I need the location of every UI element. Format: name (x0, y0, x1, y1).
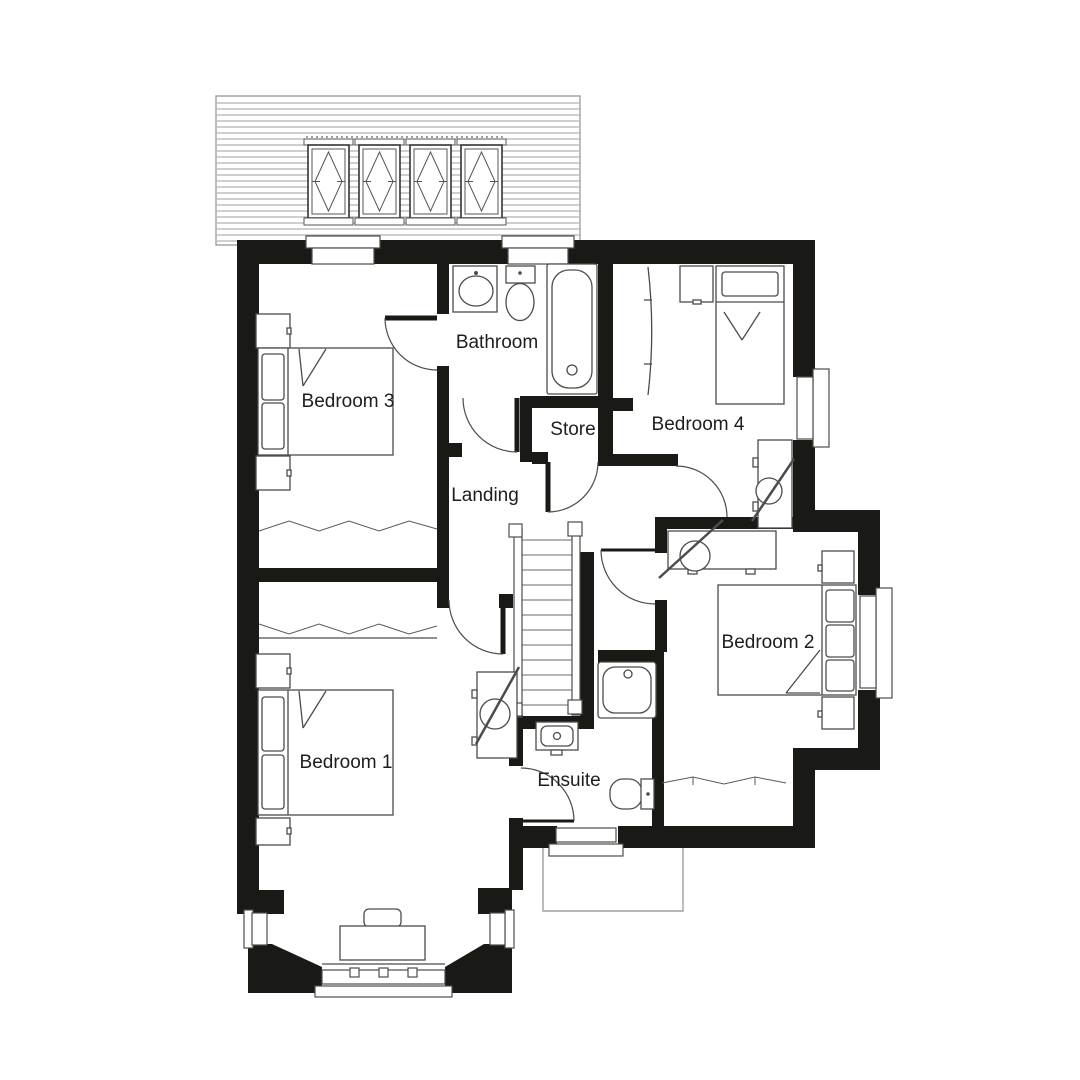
label-store: Store (550, 419, 595, 440)
wall-top-right (568, 240, 815, 264)
wall-top-mid (374, 240, 508, 264)
bedside-cabinet (822, 551, 854, 583)
staircase-symbol (509, 522, 582, 717)
single-bed-symbol (716, 266, 784, 404)
wardrobe-rail-bedroom3 (259, 521, 437, 531)
bathtub-symbol (547, 264, 597, 394)
cabinet-handle (818, 565, 822, 571)
door-store (548, 462, 598, 512)
dormer-window (304, 139, 353, 225)
wall-step-bedroom2-bottom (815, 748, 880, 770)
label-bedroom-3: Bedroom 3 (302, 391, 395, 412)
dormer-roof-elevation (216, 96, 580, 245)
dormer-windows (304, 139, 506, 225)
cabinet-handle (287, 470, 291, 476)
label-landing: Landing (451, 485, 519, 506)
wall-right-upper (793, 240, 815, 377)
shower-tray-symbol (598, 662, 656, 718)
wall-bedroom2-right-upper (858, 510, 880, 595)
label-bathroom: Bathroom (456, 332, 538, 353)
bathroom-sink-symbol (453, 266, 497, 312)
ensuite-toilet-symbol (610, 779, 654, 809)
bathroom-toilet-symbol (506, 266, 535, 321)
door-bathroom (463, 398, 517, 452)
label-bedroom-1: Bedroom 1 (300, 752, 393, 773)
dormer-window (406, 139, 455, 225)
window-bedroom3-front (306, 236, 380, 264)
cabinet-handle (287, 668, 291, 674)
ensuite-sink-symbol (536, 722, 578, 755)
wall-nib-landing (437, 443, 462, 457)
wall-wardrobe-partition (237, 568, 449, 582)
desk-with-chair-symbol (472, 667, 519, 758)
bedside-cabinet (256, 314, 290, 348)
door-bedroom2 (601, 550, 655, 604)
label-bedroom-2: Bedroom 2 (722, 632, 815, 653)
stair-post (568, 522, 582, 536)
wardrobe-rail-bedroom2 (662, 777, 786, 785)
wall-nib-bedroom4 (613, 398, 633, 411)
cabinet-handle (818, 711, 822, 717)
wall-bottom-right (618, 826, 815, 848)
wall-bedroom2-left-lower (655, 600, 667, 652)
stair-post (568, 700, 582, 714)
door-bedroom4 (676, 466, 727, 517)
bedside-cabinet (256, 456, 290, 490)
bedside-cabinet (256, 654, 290, 688)
bedside-cabinet (822, 697, 854, 729)
window-bedroom4-side (797, 369, 829, 447)
window-ensuite-bottom (549, 828, 623, 856)
wall-bathroom-bedroom4 (598, 262, 613, 466)
stair-treads (522, 540, 572, 705)
window-bathroom-front (502, 236, 574, 264)
bedroom3-furniture (256, 314, 437, 531)
dressing-table-with-stool-symbol (340, 909, 425, 960)
wall-store-top (520, 396, 613, 408)
wall-ensuite-left-lower (509, 818, 523, 890)
stair-post (509, 524, 522, 537)
wall-bay-corner-right (445, 944, 512, 993)
window-bay-front (315, 964, 452, 997)
window-bay-right (490, 910, 514, 948)
wall-ensuite-top (598, 650, 664, 663)
dormer-window (457, 139, 506, 225)
floor-plan-page: Bathroom Bedroom 3 Bedroom 4 Store Landi… (0, 0, 1080, 1080)
wardrobe-bedroom4 (644, 267, 652, 395)
window-bedroom2-side (860, 588, 892, 698)
roof-outline-below (543, 848, 683, 911)
desk-with-chair-symbol (752, 440, 794, 528)
wall-stub-bedroom4-door (598, 454, 678, 466)
dormer-window (355, 139, 404, 225)
bathroom-fixtures (453, 264, 597, 394)
wall-bay-corner-left (248, 944, 322, 993)
stair-rail-right (572, 527, 580, 715)
floor-plan-canvas: Bathroom Bedroom 3 Bedroom 4 Store Landi… (0, 0, 1080, 1080)
door-bedroom1 (449, 600, 503, 654)
wall-store-left (520, 396, 532, 462)
bedside-cabinet (256, 818, 290, 845)
window-bay-left (244, 910, 267, 948)
bedside-cabinet (680, 266, 713, 302)
wardrobe-rail-bedroom1 (259, 624, 437, 634)
cabinet-handle (693, 300, 701, 304)
wall-bedroom2-left-upper (655, 517, 667, 553)
cabinet-handle (287, 828, 291, 834)
label-ensuite: Ensuite (537, 770, 600, 791)
label-bedroom-4: Bedroom 4 (652, 414, 745, 435)
cabinet-handle (287, 328, 291, 334)
wall-bathroom-left (437, 262, 449, 314)
